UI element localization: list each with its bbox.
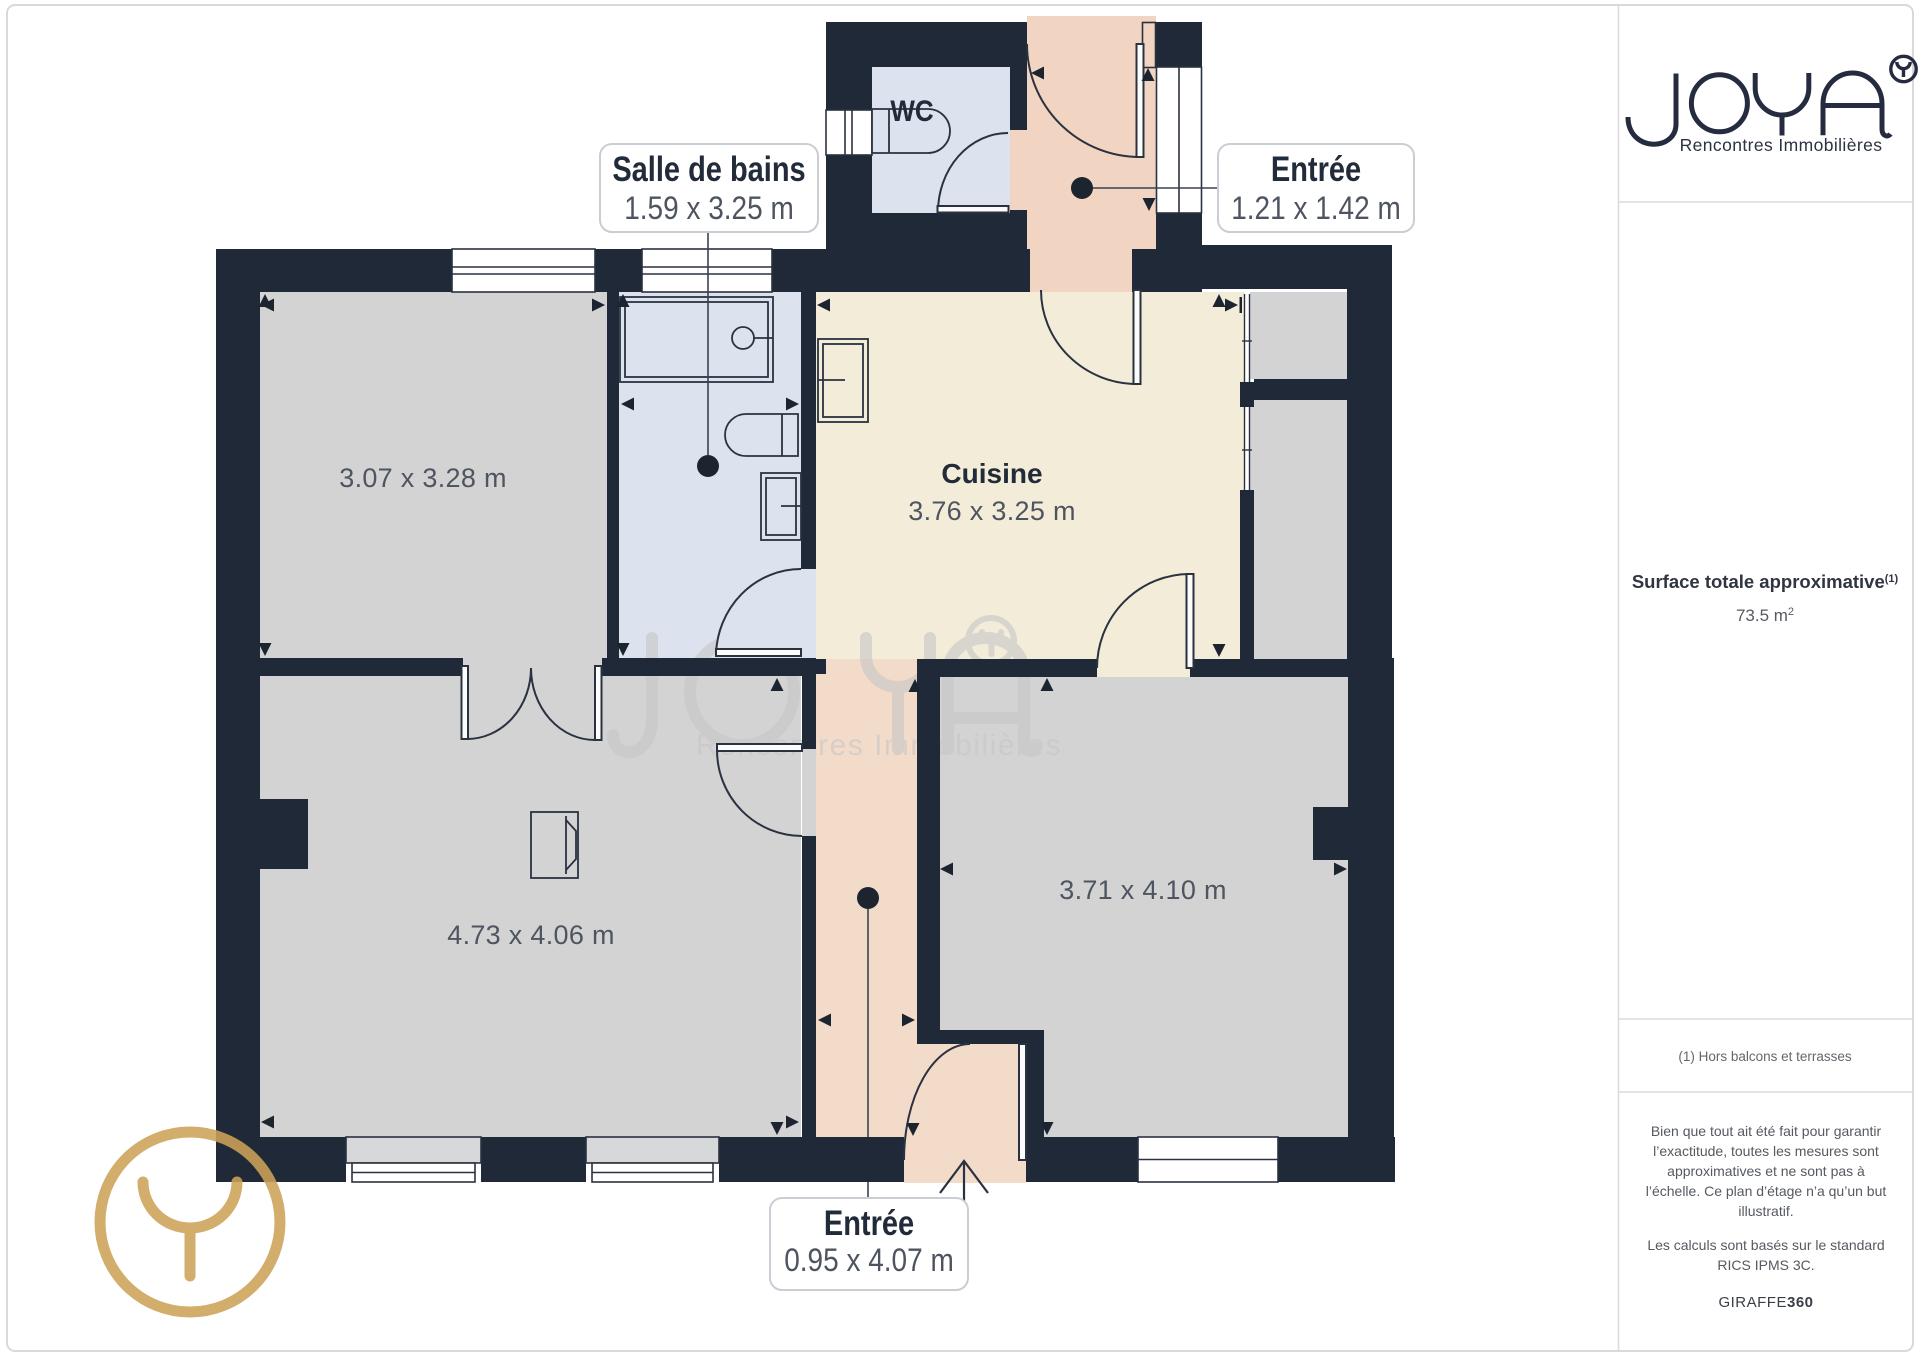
svg-text:Les calculs sont basés sur le: Les calculs sont basés sur le standard	[1647, 1237, 1884, 1253]
svg-text:l’exactitude, toutes les mesur: l’exactitude, toutes les mesures sont	[1653, 1143, 1879, 1159]
svg-text:illustratif.: illustratif.	[1738, 1203, 1793, 1219]
svg-text:WC: WC	[890, 94, 933, 127]
svg-text:GIRAFFE360: GIRAFFE360	[1718, 1294, 1813, 1311]
svg-text:(1) Hors balcons et terrasses: (1) Hors balcons et terrasses	[1678, 1049, 1852, 1064]
svg-text:3.76 x 3.25 m: 3.76 x 3.25 m	[908, 496, 1076, 526]
svg-text:3.71 x 4.10 m: 3.71 x 4.10 m	[1059, 875, 1227, 905]
svg-text:l’échelle. Ce plan d’étage n’a: l’échelle. Ce plan d’étage n’a qu’un but	[1646, 1183, 1887, 1199]
svg-text:1.21 x 1.42 m: 1.21 x 1.42 m	[1231, 191, 1401, 226]
svg-text:3.07 x 3.28 m: 3.07 x 3.28 m	[339, 463, 507, 493]
svg-text:Bien que tout ait été fait pou: Bien que tout ait été fait pour garantir	[1651, 1123, 1882, 1139]
svg-text:73.5 m2: 73.5 m2	[1736, 606, 1794, 625]
svg-text:4.73 x 4.06 m: 4.73 x 4.06 m	[447, 920, 615, 950]
svg-text:Salle de bains: Salle de bains	[612, 149, 805, 188]
svg-text:RICS IPMS 3C.: RICS IPMS 3C.	[1717, 1257, 1814, 1273]
svg-text:Entrée: Entrée	[1271, 149, 1361, 188]
svg-text:Rencontres Immobilières: Rencontres Immobilières	[1680, 135, 1883, 155]
svg-text:Entrée: Entrée	[824, 1204, 914, 1243]
svg-text:Cuisine: Cuisine	[941, 458, 1042, 489]
svg-text:approximatives et ne sont pas: approximatives et ne sont pas à	[1667, 1163, 1865, 1179]
svg-text:0.95 x 4.07 m: 0.95 x 4.07 m	[784, 1243, 954, 1278]
svg-text:Surface totale approximative(1: Surface totale approximative(1)	[1632, 571, 1899, 592]
svg-text:1.59 x 3.25 m: 1.59 x 3.25 m	[624, 191, 794, 226]
